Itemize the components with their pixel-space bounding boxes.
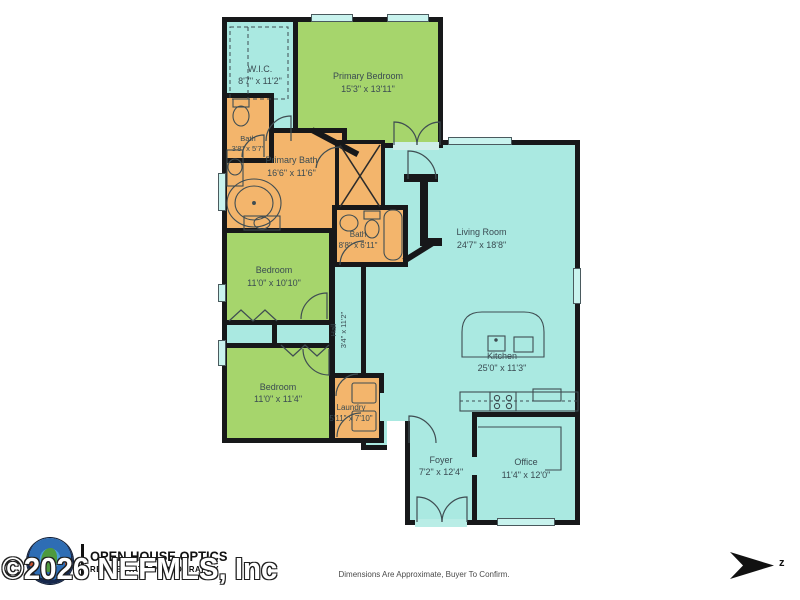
window: [448, 137, 512, 145]
room-bath-small: Bath 3'8" x 5'7": [222, 93, 274, 163]
window: [573, 268, 581, 304]
room-label-laundry: Laundry 5'11" x 7'10": [329, 403, 384, 425]
room-dims: 11'0" x 11'4": [254, 393, 302, 405]
room-dims: 24'7" x 18'8": [456, 239, 506, 251]
room-name: Bedroom: [247, 264, 301, 276]
room-label-bedroom-2: Bedroom 11'0" x 11'4": [254, 381, 302, 405]
room-name: Hall: [329, 295, 339, 365]
room-label-primary-bedroom: Primary Bedroom 15'3" x 13'11": [333, 70, 403, 94]
room-bedroom-2: Bedroom 11'0" x 11'4": [222, 343, 334, 443]
room-office: Office 11'4" x 12'0": [472, 412, 580, 525]
room-dims: 3'4" x 11'2": [339, 295, 349, 365]
room-label-primary-bath: Primary Bath 16'6" x 11'6": [265, 154, 317, 178]
window: [497, 518, 555, 526]
room-name: Laundry: [329, 403, 372, 414]
room-label-wic: W.I.C. 8'7" x 11'2": [238, 63, 282, 87]
room-name: Living Room: [456, 226, 506, 238]
room-label-living: Living Room 24'7" x 18'8": [456, 226, 506, 250]
room-dims: 3'8" x 5'7": [232, 144, 265, 154]
room-name: Bedroom: [254, 381, 302, 393]
room-name: Office: [502, 456, 551, 468]
shower-stall: [335, 140, 385, 212]
room-dims: 8'8" x 6'11": [339, 241, 378, 252]
window: [311, 14, 353, 22]
mls-watermark: ©2026 NEFMLS, Inc: [2, 551, 277, 587]
room-name: Primary Bath: [265, 154, 317, 166]
room-dims: 11'0" x 10'10": [247, 277, 301, 289]
north-arrow-icon: [730, 552, 776, 580]
room-dims: 5'11" x 7'10": [329, 414, 372, 425]
room-foyer: Foyer 7'2" x 12'4": [405, 412, 477, 525]
room-bedroom-1: Bedroom 11'0" x 10'10": [222, 228, 334, 325]
room-laundry: Laundry 5'11" x 7'10": [330, 373, 384, 443]
room-label-bath-2: Bath 8'8" x 6'11": [339, 230, 402, 252]
room-dims: 15'3" x 13'11": [333, 83, 403, 95]
room-living: Living Room 24'7" x 18'8": [363, 140, 580, 417]
wall-segment: [420, 238, 442, 246]
doorway-gap: [393, 142, 439, 150]
window: [387, 14, 429, 22]
doorway-gap: [415, 519, 467, 527]
window: [218, 340, 226, 366]
disclaimer-text: Dimensions Are Approximate, Buyer To Con…: [338, 570, 509, 579]
room-label-bath-small: Bath 3'8" x 5'7": [232, 134, 265, 158]
room-name: Kitchen: [462, 350, 542, 362]
wall-segment: [420, 182, 428, 238]
room-label-foyer: Foyer 7'2" x 12'4": [419, 454, 463, 478]
room-label-kitchen: Kitchen 25'0" x 11'3": [462, 350, 542, 374]
wall-segment: [272, 320, 277, 348]
room-bath-2: Bath 8'8" x 6'11": [332, 205, 408, 267]
room-name: Bath: [339, 230, 378, 241]
room-dims: 7'2" x 12'4": [419, 466, 463, 478]
window: [218, 284, 226, 302]
room-dims: 16'6" x 11'6": [265, 167, 317, 179]
room-label-hall: Hall 3'4" x 11'2": [329, 295, 357, 365]
room-dims: 11'4" x 12'0": [502, 469, 551, 481]
room-name: W.I.C.: [238, 63, 282, 75]
room-dims: 8'7" x 11'2": [238, 75, 282, 87]
room-name: Bath: [232, 134, 265, 144]
room-name: Foyer: [419, 454, 463, 466]
wall-segment: [404, 174, 438, 182]
compass-label: z: [779, 557, 785, 569]
room-dims: 25'0" x 11'3": [462, 362, 542, 374]
room-label-office: Office 11'4" x 12'0": [502, 456, 551, 480]
room-label-bedroom-1: Bedroom 11'0" x 10'10": [247, 264, 301, 288]
room-name: Primary Bedroom: [333, 70, 403, 82]
doorway-gap: [470, 457, 479, 475]
window: [218, 173, 226, 211]
floor-plan: Living Room 24'7" x 18'8" Foyer 7'2" x 1…: [0, 0, 800, 600]
